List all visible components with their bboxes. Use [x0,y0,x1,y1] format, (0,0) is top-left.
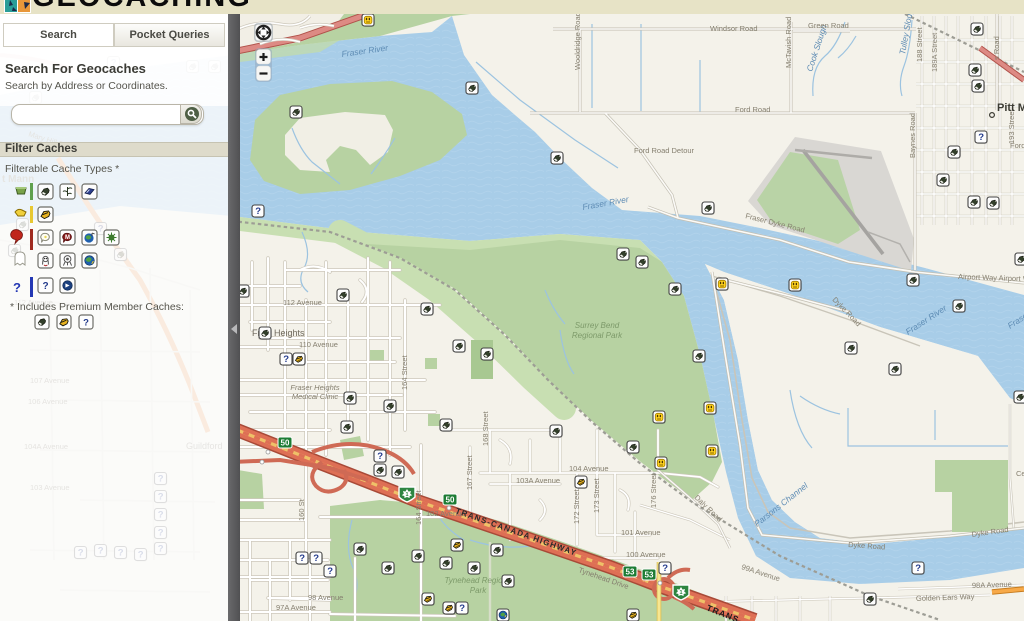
svg-text:Baynes Road: Baynes Road [908,113,917,158]
svg-text:176 Street: 176 Street [649,472,658,508]
svg-text:98A Avenue: 98A Avenue [972,580,1012,590]
svg-text:97A Avenue: 97A Avenue [276,603,316,612]
svg-text:167 Street: 167 Street [465,454,474,490]
svg-text:101 Avenue: 101 Avenue [621,528,661,537]
svg-text:100 Avenue: 100 Avenue [626,550,666,559]
svg-text:164 Street: 164 Street [400,354,409,390]
svg-text:104 Avenue: 104 Avenue [569,464,609,473]
svg-text:* Includes Premium Member Cach: * Includes Premium Member Caches: [10,301,184,313]
svg-text:?: ? [13,280,21,295]
svg-text:s Road: s Road [992,36,1001,60]
svg-text:173 Street: 173 Street [592,477,601,513]
svg-text:112 Avenue: 112 Avenue [283,298,322,307]
svg-text:Green Road: Green Road [808,21,849,30]
svg-text:Wooldridge Road: Wooldridge Road [573,12,582,70]
svg-text:168 Street: 168 Street [481,410,490,446]
svg-text:Fraser Heights: Fraser Heights [290,383,339,392]
svg-text:172 Street: 172 Street [572,488,581,524]
svg-text:Park: Park [470,586,487,595]
svg-text:Medical Clinic: Medical Clinic [292,392,339,401]
svg-text:Heights: Heights [274,328,305,338]
svg-text:189A Street: 189A Street [930,32,939,72]
svg-text:Pitt M: Pitt M [997,102,1024,114]
svg-text:110 Avenue: 110 Avenue [299,340,338,349]
svg-text:188 Street: 188 Street [915,26,924,62]
svg-text:McTavish Road: McTavish Road [784,17,793,68]
svg-text:?: ? [42,281,48,292]
svg-text:?: ? [83,317,89,328]
svg-text:160 St: 160 St [297,498,306,521]
svg-text:Surrey Bend: Surrey Bend [575,321,620,330]
svg-text:Ford Road: Ford Road [735,105,770,114]
svg-text:98 Avenue: 98 Avenue [308,593,343,602]
svg-text:Windsor Road: Windsor Road [710,24,758,33]
svg-text:M: M [65,235,70,241]
svg-text:Cen: Cen [1016,469,1024,478]
svg-text:103A Avenue: 103A Avenue [516,476,560,485]
svg-text:Regional Park: Regional Park [572,331,623,340]
svg-text:Ford Road Detour: Ford Road Detour [634,146,695,155]
